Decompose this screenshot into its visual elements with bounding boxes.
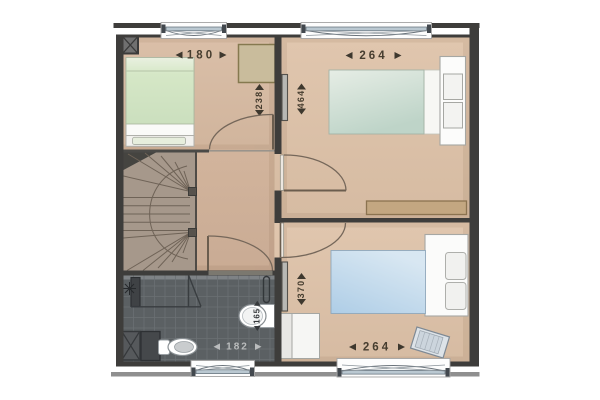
svg-text:370: 370	[296, 280, 306, 299]
svg-text:165: 165	[253, 308, 262, 324]
svg-text:464: 464	[296, 90, 306, 109]
svg-text:238: 238	[254, 91, 264, 110]
svg-text:180: 180	[187, 50, 215, 62]
svg-text:264: 264	[359, 50, 387, 62]
svg-text:264: 264	[363, 342, 391, 354]
svg-text:182: 182	[226, 342, 249, 353]
